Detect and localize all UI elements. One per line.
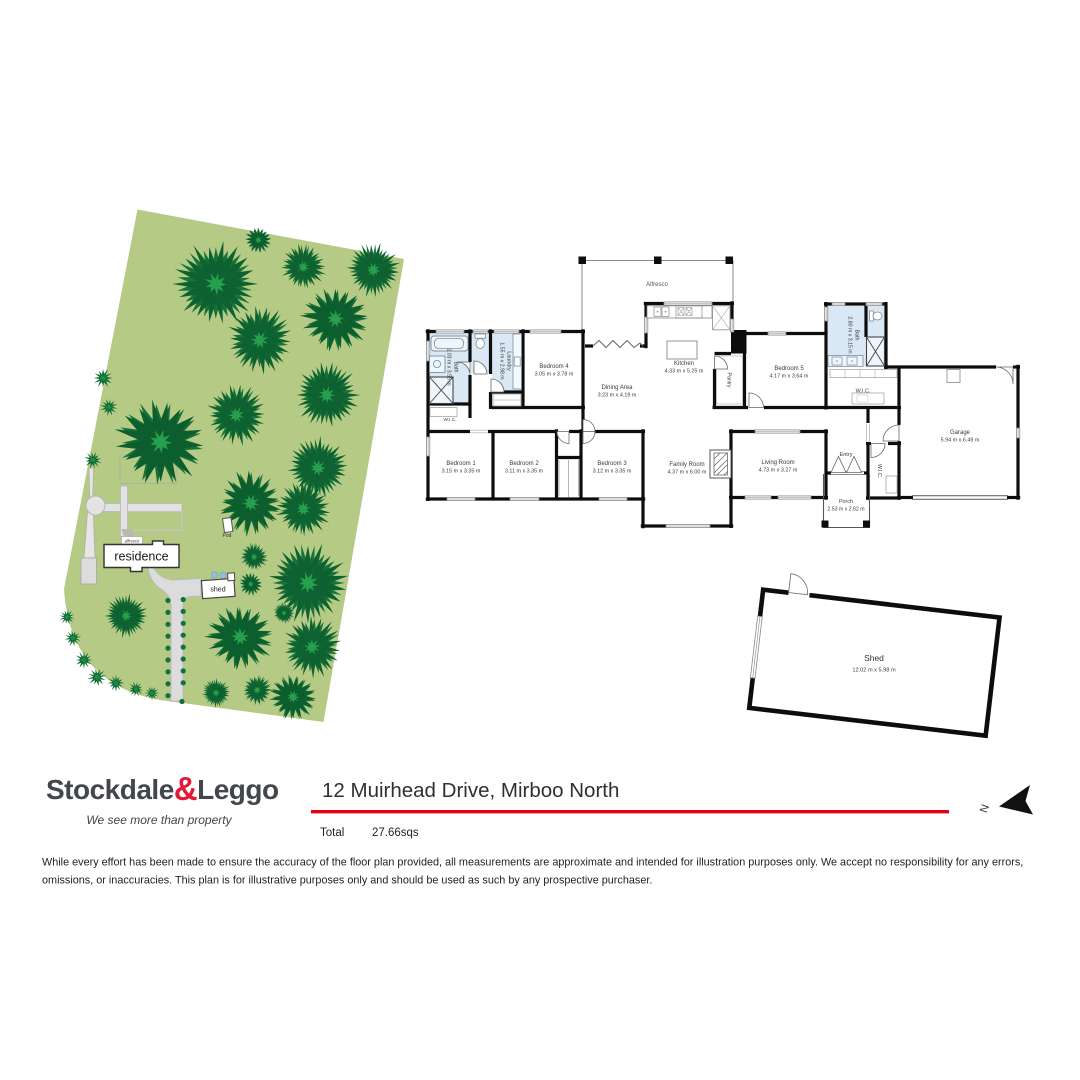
- svg-text:4.17 m x 3.64 m: 4.17 m x 3.64 m: [770, 373, 809, 379]
- svg-text:Stockdale&Leggo: Stockdale&Leggo: [46, 770, 279, 807]
- svg-text:Porch: Porch: [839, 499, 853, 505]
- svg-text:3.23 m x 4.19 m: 3.23 m x 4.19 m: [598, 392, 637, 398]
- svg-text:2.53 m x 2.62 m: 2.53 m x 2.62 m: [827, 506, 864, 512]
- svg-text:Bedroom 2: Bedroom 2: [509, 461, 539, 467]
- svg-text:4.37 m x 6.00 m: 4.37 m x 6.00 m: [668, 469, 707, 475]
- svg-text:We see more than property: We see more than property: [86, 813, 232, 827]
- svg-text:Dining Area: Dining Area: [601, 385, 633, 391]
- svg-text:Bath: Bath: [854, 329, 860, 340]
- svg-text:shed: shed: [210, 587, 225, 594]
- svg-text:Laundry: Laundry: [506, 351, 512, 371]
- svg-text:3.05 m x 3.78 m: 3.05 m x 3.78 m: [535, 371, 574, 377]
- svg-text:Bath: Bath: [453, 361, 459, 372]
- svg-text:Pantry: Pantry: [726, 373, 732, 388]
- svg-text:Shed: Shed: [864, 653, 884, 663]
- svg-text:Alfresco: Alfresco: [646, 282, 668, 288]
- svg-text:Bedroom 4: Bedroom 4: [539, 364, 569, 370]
- svg-text:Garage: Garage: [950, 430, 971, 436]
- svg-text:12 Muirhead Drive, Mirboo Nort: 12 Muirhead Drive, Mirboo North: [322, 779, 619, 802]
- svg-text:Bedroom 5: Bedroom 5: [774, 366, 804, 372]
- svg-text:12.02 m x 5.98 m: 12.02 m x 5.98 m: [852, 668, 896, 674]
- svg-text:residence: residence: [114, 550, 168, 564]
- svg-text:Pod: Pod: [223, 533, 232, 539]
- svg-text:Bedroom 1: Bedroom 1: [446, 461, 476, 467]
- svg-text:W.I.C.: W.I.C.: [856, 389, 871, 395]
- svg-text:Kitchen: Kitchen: [674, 361, 694, 367]
- svg-text:3.15 m x 3.35 m: 3.15 m x 3.35 m: [442, 468, 481, 474]
- svg-text:omissions, or inaccuracies. Th: omissions, or inaccuracies. This plan is…: [42, 875, 652, 887]
- svg-text:Total: Total: [320, 827, 344, 839]
- svg-text:alfresco: alfresco: [125, 538, 140, 543]
- svg-text:1.55 m x 2.98 m: 1.55 m x 2.98 m: [499, 342, 505, 379]
- svg-text:5.94 m x 6.49 m: 5.94 m x 6.49 m: [941, 437, 980, 443]
- svg-text:4.33 m x 5.25 m: 4.33 m x 5.25 m: [665, 368, 704, 374]
- svg-text:27.66sqs: 27.66sqs: [372, 827, 419, 839]
- svg-text:2.80 m x 3.15 m: 2.80 m x 3.15 m: [847, 316, 853, 353]
- svg-text:3.11 m x 3.35 m: 3.11 m x 3.35 m: [505, 468, 544, 474]
- svg-text:Family Room: Family Room: [669, 462, 704, 468]
- svg-text:W.I.C.: W.I.C.: [443, 417, 456, 423]
- svg-text:While every effort has been ma: While every effort has been made to ensu…: [42, 857, 1023, 869]
- svg-text:W.I.C.: W.I.C.: [876, 464, 882, 478]
- svg-text:Bedroom 3: Bedroom 3: [597, 461, 627, 467]
- svg-text:4.73 m x 3.27 m: 4.73 m x 3.27 m: [759, 467, 798, 473]
- svg-text:Living Room: Living Room: [761, 460, 794, 466]
- svg-text:Entry: Entry: [839, 452, 852, 458]
- svg-text:2.03 m x 3.55 m: 2.03 m x 3.55 m: [446, 348, 452, 385]
- svg-text:3.12 m x 3.35 m: 3.12 m x 3.35 m: [593, 468, 632, 474]
